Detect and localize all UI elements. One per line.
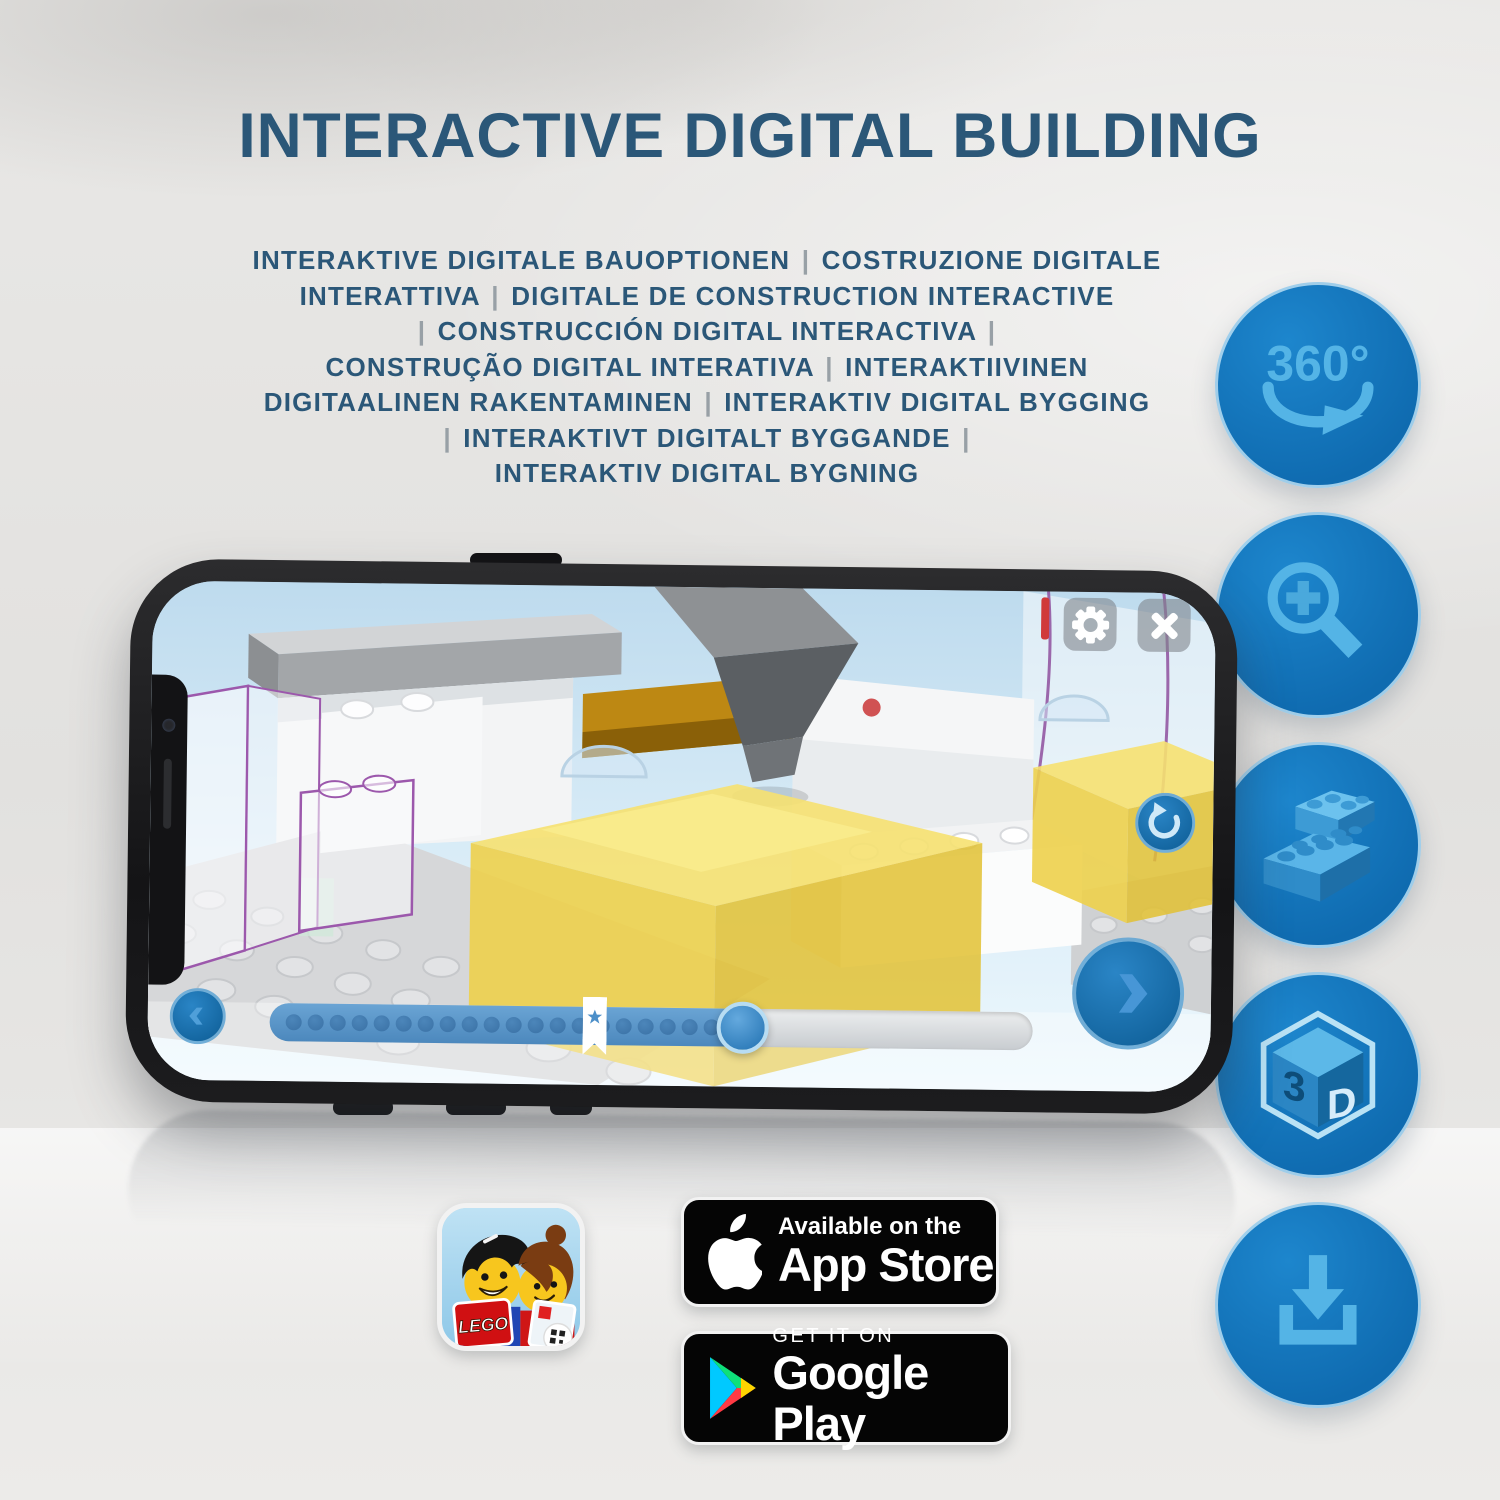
speaker-icon [163,759,172,829]
feature-badge-download [1215,1202,1421,1408]
rotate-view-button[interactable] [1135,793,1196,854]
chevron-left-icon [181,999,215,1033]
chevron-right-icon [1092,957,1165,1030]
notch [148,675,188,985]
phone-screen [147,581,1216,1093]
app-store-badge[interactable]: Available on the App Store [681,1197,999,1307]
brick-icon [1250,777,1386,913]
rotate-icon [1143,801,1188,846]
feature-badge-zoom [1215,512,1421,718]
feature-badge-3d: 3 D [1215,972,1421,1178]
subtitle-line: INTERAKTIVE DIGITALE BAUOPTIONEN | COSTR… [57,243,1357,279]
lego-app-art: LEGO [442,1208,580,1346]
zoom-in-icon [1250,547,1386,683]
cube-face-3: 3 [1283,1061,1306,1111]
star-icon [587,1009,603,1025]
progress-dots [286,1014,720,1035]
progress-fill [269,1003,742,1047]
google-play-name: Google Play [772,1348,1008,1450]
google-play-icon [706,1352,758,1424]
close-button[interactable] [1137,599,1191,653]
settings-button[interactable] [1063,598,1117,652]
subtitle-line: | INTERAKTIVT DIGITALT BYGGANDE | [57,421,1357,457]
google-play-tagline: GET IT ON [772,1326,1008,1348]
rotation-360-label: 360° [1266,335,1369,391]
app-store-tagline: Available on the [778,1214,994,1240]
subtitle-line: INTERATTIVA | DIGITALE DE CONSTRUCTION I… [57,279,1357,315]
cube-3d-icon: 3 D [1250,1007,1386,1143]
phone-frame [125,558,1239,1114]
app-store-name: App Store [778,1240,994,1291]
subtitle-line: DIGITAALINEN RAKENTAMINEN | INTERAKTIV D… [57,385,1357,421]
subtitle-block: INTERAKTIVE DIGITALE BAUOPTIONEN | COSTR… [57,243,1357,492]
gear-icon [1070,604,1110,644]
cube-face-d: D [1327,1077,1356,1129]
marketing-image: INTERACTIVE DIGITAL BUILDING INTERAKTIVE… [0,0,1500,1500]
apple-icon [708,1214,762,1290]
feature-badge-360: 360° [1215,282,1421,488]
close-icon [1144,605,1184,645]
camera-icon [162,719,175,732]
download-icon [1250,1237,1386,1373]
progress-thumb[interactable] [716,1001,769,1054]
page-title: INTERACTIVE DIGITAL BUILDING [8,100,1493,172]
lego-app-icon[interactable]: LEGO [437,1203,585,1351]
rotation-360-icon: 360° [1250,317,1386,453]
subtitle-line: | CONSTRUCCIÓN DIGITAL INTERACTIVA | [57,314,1357,350]
subtitle-line: INTERAKTIV DIGITAL BYGNING [57,456,1357,492]
subtitle-line: CONSTRUÇÃO DIGITAL INTERATIVA | INTERAKT… [57,350,1357,386]
feature-badge-brick [1215,742,1421,948]
google-play-badge[interactable]: GET IT ON Google Play [681,1331,1011,1445]
